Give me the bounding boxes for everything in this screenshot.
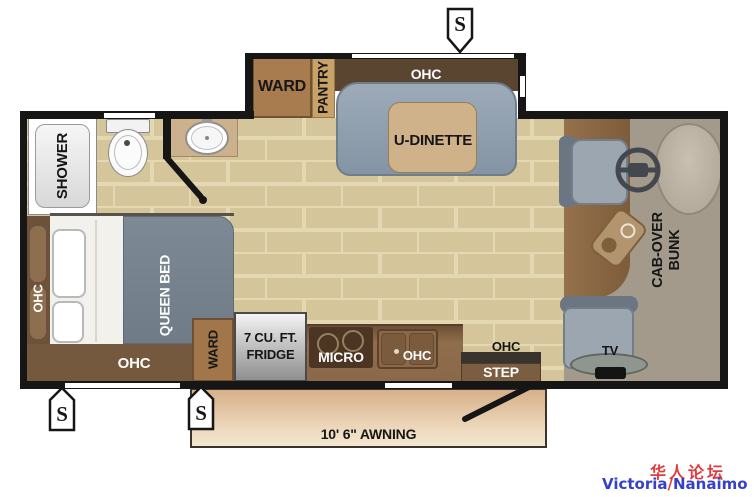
ohc-kitchen-label: OHC (392, 348, 442, 363)
step-label: STEP (470, 363, 532, 380)
speaker-letter: S (47, 400, 77, 428)
driver-seat (571, 139, 628, 205)
speaker-marker-entry: S (186, 385, 216, 431)
cab-over-bunk-line2: BUNK (667, 229, 684, 270)
window-bath (104, 113, 155, 118)
u-dinette-label: U-DINETTE (390, 132, 476, 148)
window-bed (65, 383, 180, 388)
fridge-label-line2: FRIDGE (247, 346, 295, 363)
console-cupholder-bottom (599, 235, 620, 256)
wardrobe-slideout-label: WARD (252, 79, 312, 95)
window-dinette-side (520, 76, 525, 97)
wall-left (20, 111, 27, 389)
awning-label: 10' 6" AWNING (192, 427, 545, 441)
entry-step-top (461, 352, 541, 363)
cab-over-bunk-label: CAB-OVER BUNK (649, 198, 685, 302)
awning: 10' 6" AWNING (190, 388, 547, 448)
rv-floorplan: OHC WARD PANTRY U-DINETTE SHOWER OHC QUE… (0, 0, 754, 497)
toilet-flush-dot (124, 140, 130, 146)
window-dinette (352, 54, 514, 58)
watermark-city-right: Nanaimo (673, 475, 748, 493)
speaker-letter: S (186, 399, 216, 427)
wall-right (720, 111, 728, 389)
speaker-letter: S (445, 11, 475, 37)
fridge-label-line1: 7 CU. FT. (244, 329, 297, 346)
tv-base (595, 367, 626, 379)
bed-sheet-fold (95, 220, 97, 342)
speaker-marker-bed: S (47, 386, 77, 432)
slideout-wall-left (245, 53, 253, 119)
console-cupholder-top (617, 220, 638, 241)
ohc-bed-bottom-label: OHC (104, 356, 164, 371)
ohc-dinette-label: OHC (394, 66, 458, 82)
tv-label: TV (596, 342, 624, 358)
watermark-city-left: Victoria (602, 475, 668, 493)
wardrobe-bedroom-label: WARD (207, 325, 220, 375)
wall-bathroom-partition (163, 115, 171, 159)
window-kitchen (385, 383, 452, 388)
ohc-bed-side-label: OHC (32, 278, 45, 320)
micro-label: MICRO (312, 349, 370, 365)
pillow-bottom (52, 301, 84, 343)
bath-drain-dot (205, 136, 209, 140)
cab-over-bunk-line1: CAB-OVER (650, 212, 667, 288)
pantry-label: PANTRY (317, 58, 330, 118)
ohc-entry-label: OHC (481, 339, 531, 353)
pillow-top (52, 229, 86, 298)
speaker-marker-top: S (445, 7, 475, 54)
fridge-label: 7 CU. FT. FRIDGE (234, 328, 307, 364)
watermark-english: Victoria/Nanaimo (602, 475, 746, 493)
shower-label: SHOWER (54, 130, 70, 202)
wall-top-right (518, 111, 728, 119)
bed-side-cushion-top (30, 226, 46, 282)
queen-bed-label: QUEEN BED (157, 250, 172, 342)
bed-frame-top-edge (50, 213, 234, 216)
